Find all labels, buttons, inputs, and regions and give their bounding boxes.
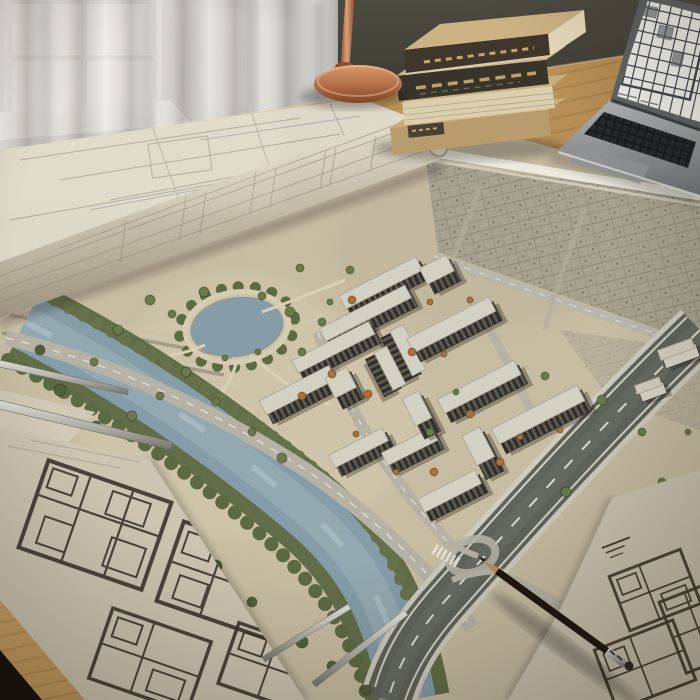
scene-artwork	[0, 0, 700, 700]
window-light-glow	[0, 0, 280, 210]
desk-scene	[0, 0, 700, 700]
